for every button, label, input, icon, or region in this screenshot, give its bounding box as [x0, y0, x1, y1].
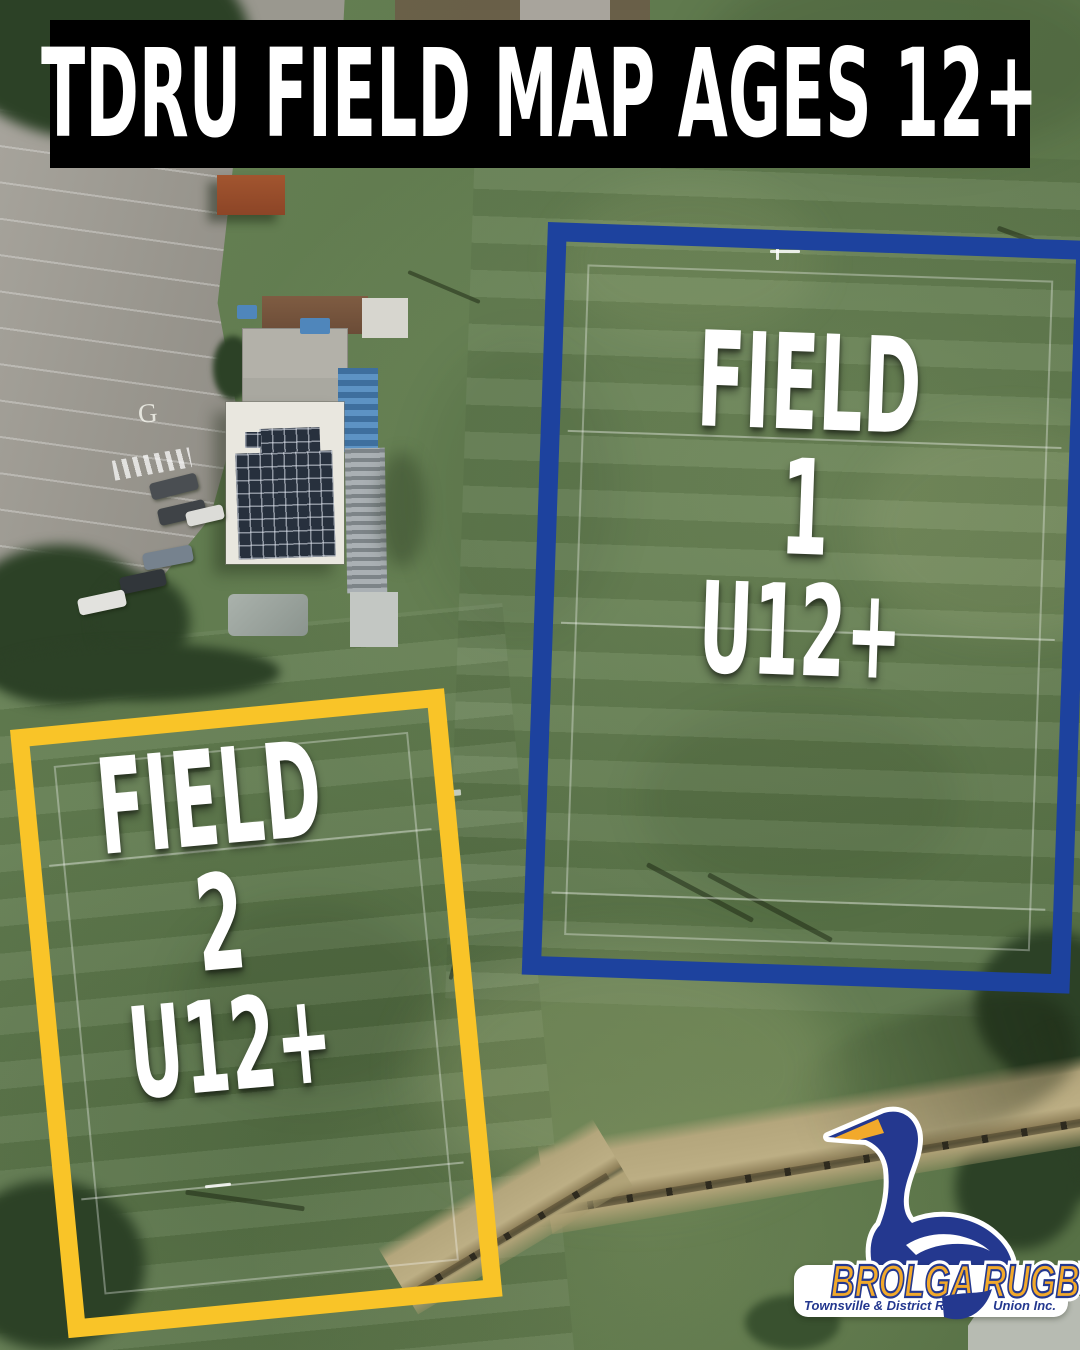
- field2-name: FIELD 2: [0, 717, 465, 1008]
- roof-gray: [242, 328, 348, 408]
- walkway: [350, 592, 398, 647]
- logo-brand-text: BROLGA RUGBY: [778, 1259, 1080, 1303]
- field1-label: FIELD 1 U12+: [549, 313, 1062, 700]
- roof-white-tarp: [362, 298, 408, 338]
- blue-equipment: [300, 318, 330, 334]
- hedge-above-field2: [0, 643, 280, 701]
- poster-title: TDRU FIELD MAP AGES 12+: [0, 27, 1080, 161]
- blue-scaffold: [338, 368, 378, 452]
- shed-red-roof: [217, 175, 285, 215]
- solar-panels-main: [235, 450, 336, 559]
- brolga-tail-icon: [936, 1289, 1000, 1333]
- blue-equipment-2: [237, 305, 257, 319]
- logo-tagline: Townsville & District Rugby Union Inc.: [804, 1298, 1056, 1313]
- title-banner: TDRU FIELD MAP AGES 12+: [50, 20, 1030, 168]
- shade-canopy: [228, 594, 308, 636]
- top-roof-hint: [520, 0, 610, 20]
- brolga-rugby-logo: BROLGA RUGBY BROLGA RUGBY Townsville & D…: [778, 1093, 1080, 1345]
- solar-panels-sq: [245, 432, 261, 448]
- field1-name: FIELD 1: [553, 313, 1061, 580]
- logo-tagline-right: Union Inc.: [993, 1298, 1056, 1313]
- building-shadow: [378, 452, 426, 567]
- parking-ground-marking: G: [137, 397, 162, 429]
- field1-age: U12+: [549, 563, 1053, 700]
- field2-label: FIELD 2 U12+: [0, 717, 475, 1127]
- field-map-poster: G: [0, 0, 1080, 1350]
